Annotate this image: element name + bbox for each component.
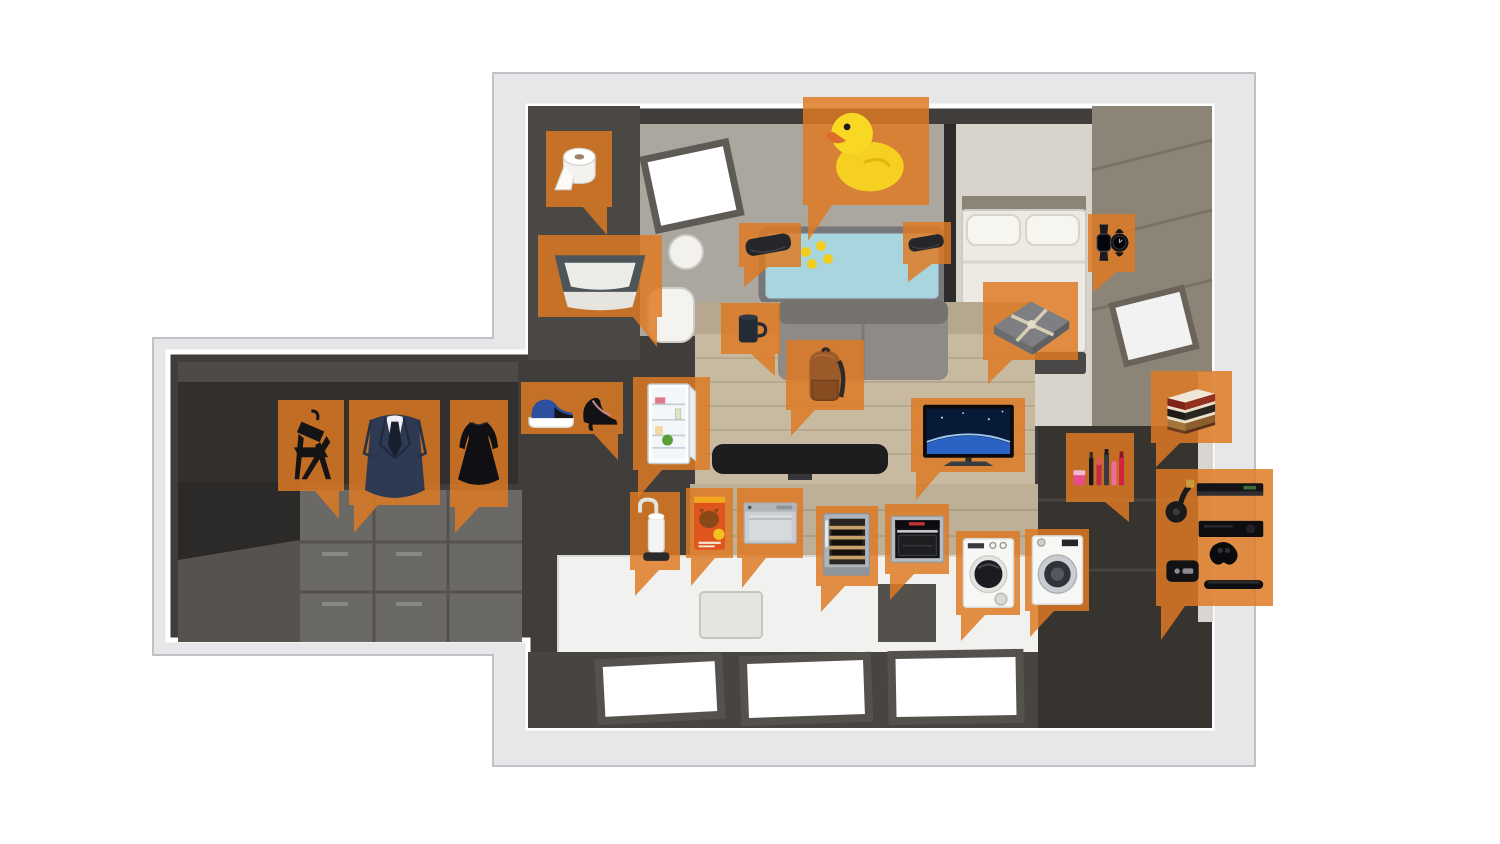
shoes-icon [525, 384, 619, 432]
callout-rubber-duck[interactable] [803, 97, 929, 205]
callout-water-filter[interactable] [630, 492, 680, 570]
apartment-canvas [0, 0, 1500, 844]
callout-washer[interactable] [1025, 529, 1089, 611]
callout-tail [635, 570, 659, 596]
callout-tail [988, 360, 1012, 384]
callout-tail [916, 472, 940, 500]
callout-tail [594, 434, 618, 460]
callout-blanket[interactable] [983, 282, 1078, 360]
cat-food-icon [688, 491, 731, 555]
callout-tail [751, 354, 775, 376]
callout-dress[interactable] [450, 400, 508, 507]
makeup-icon [1069, 436, 1132, 499]
chair-icon [281, 404, 342, 488]
rubber-duck-icon [808, 101, 924, 200]
callout-bath-pillow-right[interactable] [903, 222, 951, 264]
bath-pillow-icon [741, 225, 798, 265]
mug-icon [723, 305, 777, 352]
callout-toilet-paper[interactable] [546, 131, 612, 207]
callout-folding-chair[interactable] [278, 400, 344, 491]
callout-shoes[interactable] [521, 382, 623, 434]
callout-dryer[interactable] [956, 531, 1020, 615]
media-devices-icon [1161, 474, 1269, 600]
toilet-paper-icon [549, 134, 610, 204]
callout-media-devices[interactable] [1156, 469, 1273, 606]
callout-tail [354, 505, 378, 533]
callout-bath-pillow-left[interactable] [739, 223, 801, 267]
callout-smartwatch[interactable] [1088, 214, 1135, 272]
callout-tv[interactable] [911, 398, 1025, 472]
callout-wine-cooler[interactable] [816, 506, 878, 586]
callout-tail [691, 558, 715, 586]
callout-dishwasher[interactable] [737, 488, 803, 558]
callout-litter-box[interactable] [538, 235, 662, 317]
dishwasher-icon [740, 491, 801, 555]
tv-icon [916, 401, 1021, 469]
callout-tail [961, 615, 985, 641]
callout-tail [744, 267, 768, 287]
callout-tail [1093, 272, 1117, 292]
wine-cooler-icon [818, 509, 875, 583]
callout-layer [0, 0, 1500, 844]
books-icon [1154, 374, 1229, 440]
callout-books[interactable] [1151, 371, 1232, 443]
callout-oven[interactable] [885, 504, 949, 574]
callout-tail [742, 558, 766, 588]
callout-tail [1105, 502, 1129, 522]
callout-tail [808, 205, 832, 241]
callout-tail [1030, 611, 1054, 637]
callout-tail [455, 507, 479, 533]
callout-tail [821, 586, 845, 612]
watch-icon [1090, 216, 1133, 269]
bath-pillow-icon [905, 224, 949, 263]
fridge-icon [636, 381, 707, 467]
suit-icon [353, 404, 437, 501]
callout-tail [315, 491, 339, 519]
callout-tail [633, 317, 657, 347]
callout-mug[interactable] [721, 303, 780, 354]
water-filter-icon [632, 495, 678, 567]
callout-suit[interactable] [349, 400, 440, 505]
callout-fridge[interactable] [633, 377, 710, 470]
washer-icon [1028, 532, 1087, 607]
blanket-icon [987, 285, 1074, 357]
callout-backpack[interactable] [786, 340, 864, 410]
callout-tail [1161, 606, 1185, 640]
callout-makeup[interactable] [1066, 433, 1134, 502]
dress-icon [452, 404, 505, 502]
callout-tail [791, 410, 815, 436]
oven-icon [888, 507, 947, 571]
callout-tail [1156, 443, 1180, 467]
callout-cat-food[interactable] [686, 488, 733, 558]
dryer-icon [959, 534, 1018, 611]
backpack-icon [789, 343, 861, 407]
callout-tail [908, 264, 932, 282]
callout-tail [890, 574, 914, 600]
callout-tail [583, 207, 607, 235]
litter-box-icon [543, 238, 657, 313]
